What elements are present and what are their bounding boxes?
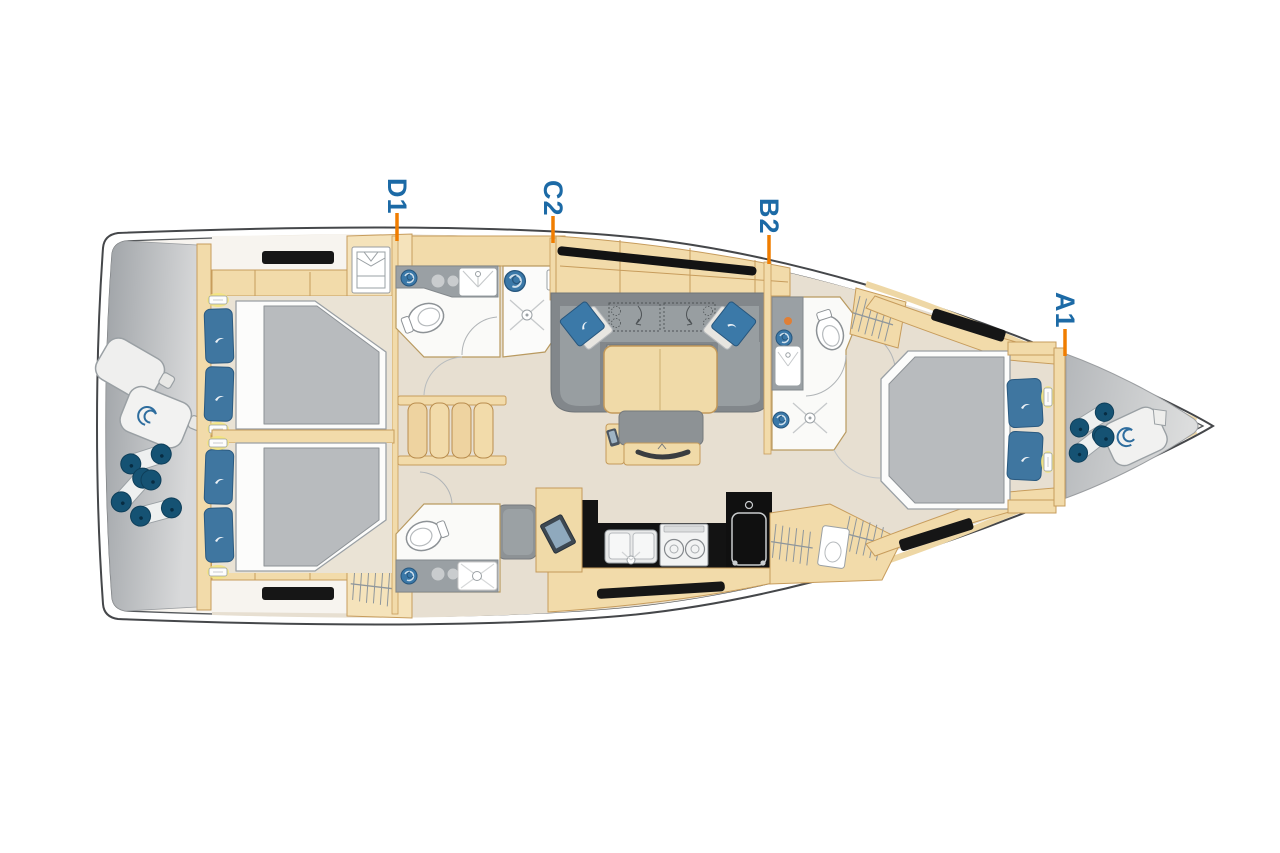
deck-hatch (262, 251, 334, 264)
cabin-label-d1[interactable]: D1 (382, 178, 412, 215)
nightstand (1008, 342, 1056, 355)
towel-icon (776, 330, 792, 346)
shower-tray-icon (458, 562, 497, 590)
bed-mattress (889, 357, 1004, 503)
sink-bowl-icon (431, 274, 445, 288)
bulkhead-c2 (550, 238, 556, 300)
pillow (204, 367, 234, 422)
sink-bowl-icon (447, 275, 459, 287)
aft-cabin-starboard (204, 436, 392, 579)
reading-lamp-icon (207, 293, 229, 307)
bulkhead-b2 (764, 262, 771, 454)
yacht-floorplan-page: D1 C2 B2 A1 (0, 0, 1280, 853)
bench-cushion (619, 411, 703, 445)
soap-icon (784, 317, 792, 325)
yacht-floorplan: D1 C2 B2 A1 (0, 0, 1280, 853)
reading-lamp-icon (1041, 386, 1055, 408)
washer-icon (505, 271, 526, 292)
cabin-divider (212, 430, 394, 443)
sofa-seat (560, 342, 600, 406)
cabin-label-a1[interactable]: A1 (1050, 292, 1080, 329)
reading-lamp-icon (207, 565, 229, 579)
sink-bowl-icon (447, 568, 459, 580)
towel-icon (401, 568, 417, 584)
deck-hatch (262, 587, 334, 600)
nav-seat-cushion (503, 509, 533, 555)
sink-bowl-icon (431, 567, 445, 581)
nightstand (1008, 500, 1056, 513)
towel-icon (773, 412, 789, 428)
overhead-cabinet (412, 236, 565, 266)
anchor-locker (1065, 354, 1198, 498)
cabin-label-c2[interactable]: C2 (538, 180, 568, 217)
towel-icon (401, 270, 417, 286)
fridge-icon (726, 492, 772, 572)
cabin-label-b2[interactable]: B2 (754, 198, 784, 235)
salon-bench (606, 411, 703, 465)
aft-cabin-port (204, 293, 392, 436)
pillow (204, 508, 234, 563)
bulkhead-a1 (1054, 348, 1065, 506)
folded-shirt-icon (352, 247, 390, 293)
galley-sink-icon (605, 530, 657, 564)
salon-table (604, 346, 717, 413)
reading-lamp-icon (1041, 451, 1055, 473)
sink-icon (459, 268, 497, 296)
sink-icon (775, 346, 801, 386)
pillow (204, 309, 234, 364)
vanity-sink-icon (817, 525, 849, 568)
head-forward-b2 (772, 297, 858, 450)
stove-icon (660, 524, 708, 566)
pillow (1007, 378, 1043, 428)
reading-lamp-icon (207, 436, 229, 450)
pillow (1007, 431, 1043, 481)
sofa-seat (718, 342, 760, 406)
pillow (204, 450, 234, 505)
